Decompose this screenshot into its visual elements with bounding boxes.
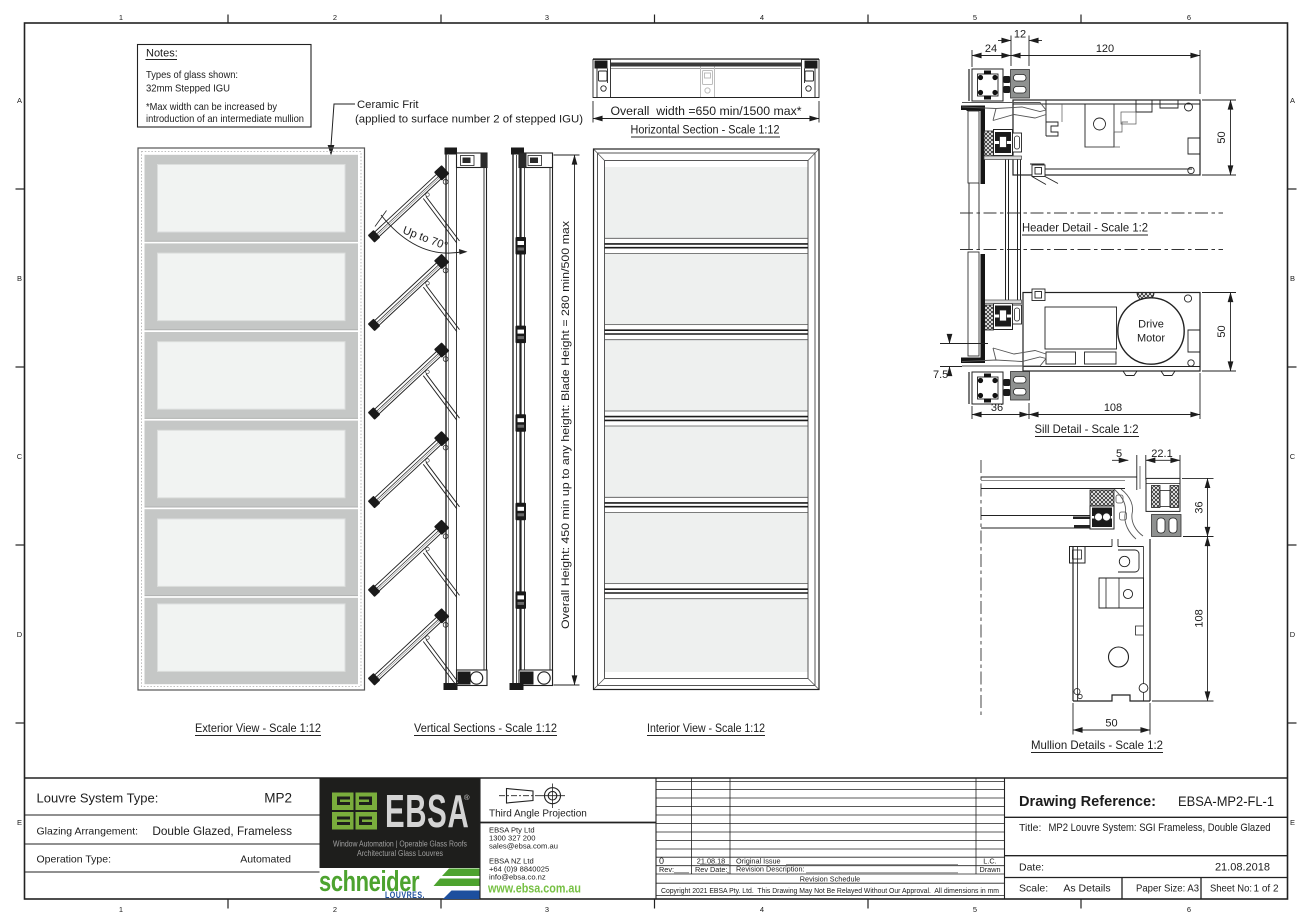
svg-text:Automated: Automated [240,854,291,866]
svg-text:7.5: 7.5 [933,369,948,381]
svg-text:Double Glazed, Frameless: Double Glazed, Frameless [152,824,292,838]
svg-text:22.1: 22.1 [1151,448,1172,460]
svg-text:2: 2 [333,905,337,914]
svg-text:D: D [1290,630,1296,639]
svg-text:Vertical Sections - Scale 1:12: Vertical Sections - Scale 1:12 [414,723,557,735]
svg-text:Drive: Drive [1138,319,1164,331]
svg-text:Operation Type:: Operation Type: [37,854,112,866]
svg-text:Drawing Reference:: Drawing Reference: [1019,794,1156,810]
svg-text:Ceramic Frit: Ceramic Frit [357,99,419,111]
svg-text:6: 6 [1187,13,1191,22]
svg-text:Paper Size: A3: Paper Size: A3 [1136,884,1199,895]
svg-text:50: 50 [1216,325,1228,337]
svg-text:A: A [1290,96,1295,105]
svg-text:MP2: MP2 [264,791,292,806]
svg-text:50: 50 [1105,718,1117,730]
svg-text:Interior View - Scale 1:12: Interior View - Scale 1:12 [647,723,765,735]
svg-text:Header Detail - Scale 1:2: Header Detail - Scale 1:2 [1022,221,1148,235]
svg-text:LOUVRES.: LOUVRES. [385,890,425,900]
svg-text:5: 5 [973,13,977,22]
svg-text:Mullion Details - Scale 1:2: Mullion Details - Scale 1:2 [1031,738,1163,752]
svg-text:Rev:: Rev: [659,865,674,874]
svg-text:Window Automation | Operable G: Window Automation | Operable Glass Roofs [333,840,467,849]
svg-text:36: 36 [991,402,1003,414]
svg-text:C: C [1290,452,1296,461]
svg-text:E: E [1290,818,1295,827]
svg-text:(applied to surface number 2 o: (applied to surface number 2 of stepped … [355,114,583,126]
svg-text:4: 4 [760,13,764,22]
svg-text:Types of glass shown:: Types of glass shown: [146,70,238,81]
svg-text:Glazing Arrangement:: Glazing Arrangement: [37,826,139,838]
svg-text:4: 4 [760,905,764,914]
svg-text:1: 1 [119,13,123,22]
svg-text:sales@ebsa.com.au: sales@ebsa.com.au [489,842,558,851]
svg-text:1 of 2: 1 of 2 [1253,884,1278,895]
svg-text:3: 3 [545,13,549,22]
svg-text:®: ® [464,793,470,802]
svg-text:36: 36 [1194,501,1206,513]
svg-text:*Max width can be increased by: *Max width can be increased by [146,102,278,113]
svg-text:24: 24 [985,43,997,55]
svg-text:108: 108 [1104,402,1122,414]
svg-text:5: 5 [1116,448,1122,460]
svg-text:Scale:: Scale: [1019,883,1048,895]
svg-text:6: 6 [1187,905,1191,914]
svg-text:Date:: Date: [1019,862,1044,874]
svg-text:Title:: Title: [1019,822,1041,834]
svg-text:Sheet No:: Sheet No: [1210,884,1252,895]
svg-text:Revision Schedule: Revision Schedule [800,875,860,884]
svg-text:Overall Height: 450 min up to: Overall Height: 450 min up to any height… [560,220,572,629]
svg-text:Rev Date:: Rev Date: [695,865,727,874]
svg-text:As Details: As Details [1063,883,1110,895]
svg-text:Copyright 2021 EBSA Pty. Ltd.: Copyright 2021 EBSA Pty. Ltd. This Drawi… [661,886,999,895]
svg-text:EBSA-MP2-FL-1: EBSA-MP2-FL-1 [1178,793,1274,809]
svg-text:120: 120 [1096,43,1114,55]
svg-text:Notes:: Notes: [146,48,178,60]
svg-text:Motor: Motor [1137,333,1165,345]
svg-text:3: 3 [545,905,549,914]
svg-text:21.08.2018: 21.08.2018 [1215,862,1270,874]
svg-text:B: B [1290,274,1295,283]
svg-text:A: A [17,96,22,105]
svg-text:Overall width =650 min/1500 m: Overall width =650 min/1500 max* [610,104,801,118]
svg-text:introduction of an intermediat: introduction of an intermediate mullion [146,114,304,125]
svg-text:Third Angle Projection: Third Angle Projection [489,809,587,820]
svg-text:Revision Description:: Revision Description: [736,865,805,874]
svg-text:Exterior View - Scale 1:12: Exterior View - Scale 1:12 [195,723,321,735]
svg-text:Drawn: Drawn [979,865,1000,874]
svg-text:Sill Detail - Scale 1:2: Sill Detail - Scale 1:2 [1035,422,1139,436]
svg-text:Horizontal Section - Scale 1:1: Horizontal Section - Scale 1:12 [631,125,780,137]
svg-text:108: 108 [1194,609,1206,627]
svg-text:B: B [17,274,22,283]
svg-text:50: 50 [1216,131,1228,143]
svg-text:info@ebsa.co.nz: info@ebsa.co.nz [489,873,546,882]
svg-text:Louvre System Type:: Louvre System Type: [37,791,159,806]
svg-text:1: 1 [119,905,123,914]
svg-text:32mm Stepped IGU: 32mm Stepped IGU [146,84,230,95]
svg-text:EBSA: EBSA [385,787,469,838]
svg-text:2: 2 [333,13,337,22]
svg-text:D: D [17,630,23,639]
svg-text:12: 12 [1014,29,1026,41]
svg-text:E: E [17,818,22,827]
svg-text:Architectural Glass Louvres: Architectural Glass Louvres [357,849,443,858]
svg-text:5: 5 [973,905,977,914]
svg-text:MP2 Louvre System: SGI Framele: MP2 Louvre System: SGI Frameless, Double… [1049,822,1271,834]
svg-text:www.ebsa.com.au: www.ebsa.com.au [487,882,581,896]
svg-text:C: C [17,452,23,461]
